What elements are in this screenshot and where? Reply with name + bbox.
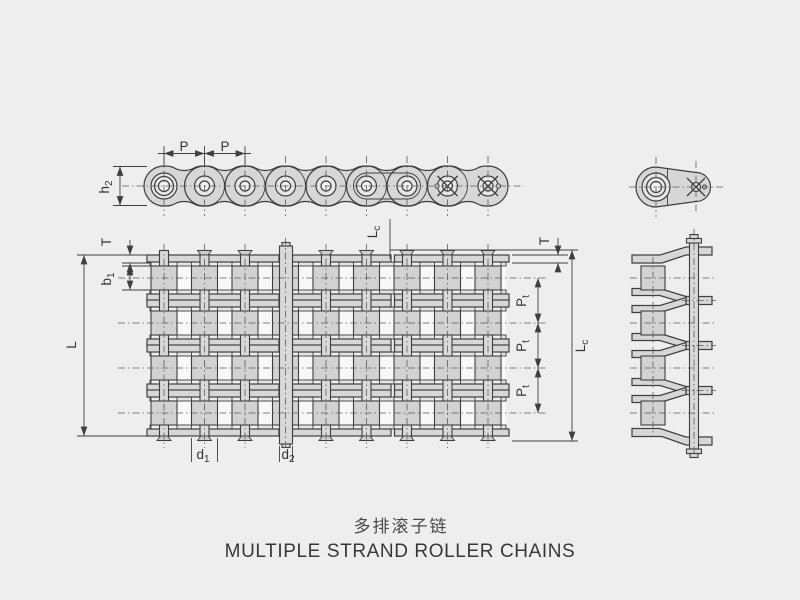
inner-plate — [218, 397, 233, 401]
pin-cap — [282, 243, 290, 247]
inner-plate — [258, 307, 273, 311]
inner-plate — [420, 380, 435, 384]
inner-plate — [461, 262, 476, 266]
inner-plate — [461, 380, 476, 384]
inner-plate — [501, 307, 506, 311]
inner-plate — [461, 397, 476, 401]
inner-plate — [339, 307, 354, 311]
inner-plate — [501, 352, 506, 356]
dim-label-pt-1: Pt — [514, 295, 532, 307]
inner-plate — [177, 307, 192, 311]
connecting-pin — [280, 246, 293, 444]
inner-plate — [299, 262, 314, 266]
cranked-plate — [632, 388, 686, 403]
inner-plate — [501, 425, 506, 429]
inner-plate — [501, 290, 506, 294]
inner-plate — [380, 425, 395, 429]
inner-plate — [299, 397, 314, 401]
inner-plate — [339, 290, 354, 294]
inner-plate — [299, 425, 314, 429]
inner-plate — [339, 397, 354, 401]
caption: 多排滚子链 MULTIPLE STRAND ROLLER CHAINS — [225, 517, 576, 562]
inner-plate — [150, 290, 151, 294]
inner-plate — [420, 307, 435, 311]
dim-label-d1: d1 — [196, 447, 210, 465]
profile-view-multistrand — [630, 229, 716, 459]
dim-label-h2: h2 — [97, 180, 115, 194]
inner-plate — [501, 380, 506, 384]
inner-plate — [258, 262, 273, 266]
inner-plate — [150, 262, 151, 266]
dim-label-l: L — [64, 341, 79, 349]
inner-plate — [461, 307, 476, 311]
outer-plate — [293, 429, 392, 436]
inner-plate — [177, 425, 192, 429]
inner-plate — [299, 352, 314, 356]
inner-plate — [218, 352, 233, 356]
inner-plate — [420, 352, 435, 356]
inner-plate — [461, 335, 476, 339]
inner-plate — [218, 290, 233, 294]
bottom-plate — [632, 429, 712, 446]
inner-plate — [150, 307, 151, 311]
inner-plate — [218, 262, 233, 266]
inner-plate — [420, 425, 435, 429]
inner-plate — [501, 262, 506, 266]
inner-plate — [420, 290, 435, 294]
cranked-plate — [632, 298, 686, 313]
inner-plate — [461, 352, 476, 356]
inner-plate — [420, 335, 435, 339]
inner-plate — [150, 397, 151, 401]
inner-plate — [380, 397, 395, 401]
inner-plate — [380, 380, 395, 384]
inner-plate — [218, 307, 233, 311]
inner-plate — [380, 335, 395, 339]
dim-label-t-left: T — [99, 238, 114, 246]
inner-plate — [299, 380, 314, 384]
inner-plate — [501, 397, 506, 401]
dim-label-pitch-2: P — [220, 139, 229, 154]
inner-plate — [258, 335, 273, 339]
outer-plate — [293, 390, 392, 397]
inner-plate — [258, 397, 273, 401]
inner-plate — [150, 352, 151, 356]
inner-plate — [258, 425, 273, 429]
title-english: MULTIPLE STRAND ROLLER CHAINS — [225, 541, 576, 562]
inner-plate — [420, 397, 435, 401]
outer-plate — [293, 255, 392, 262]
outer-plate — [293, 300, 392, 307]
inner-plate — [380, 307, 395, 311]
top-plate — [632, 247, 712, 263]
inner-plate — [420, 262, 435, 266]
inner-plate — [258, 352, 273, 356]
dim-label-lc-right: Lc — [573, 340, 591, 353]
inner-plate — [501, 335, 506, 339]
inner-plate — [177, 290, 192, 294]
dim-label-t-right: T — [537, 237, 552, 245]
inner-plate — [461, 290, 476, 294]
inner-plate — [339, 262, 354, 266]
inner-plate — [150, 335, 151, 339]
inner-plate — [299, 290, 314, 294]
inner-plate — [150, 380, 151, 384]
inner-plate — [380, 290, 395, 294]
cranked-plate — [632, 343, 686, 358]
inner-plate — [177, 262, 192, 266]
side-view-chain — [122, 156, 524, 216]
inner-plate — [299, 307, 314, 311]
inner-plate — [150, 425, 151, 429]
inner-plate — [177, 380, 192, 384]
title-chinese: 多排滚子链 — [354, 517, 449, 537]
drawing-canvas: P P h2 Lc T b1 L T Pt Pt Pt Lc d1 d2 多排滚… — [0, 0, 800, 600]
inner-plate — [258, 290, 273, 294]
end-view-link — [629, 157, 723, 217]
dim-label-pt-2: Pt — [514, 340, 532, 352]
inner-plate — [380, 352, 395, 356]
inner-plate — [218, 335, 233, 339]
technical-drawing: P P h2 Lc T b1 L T Pt Pt Pt Lc d1 d2 多排滚… — [0, 0, 800, 600]
inner-plate — [339, 352, 354, 356]
inner-plate — [339, 425, 354, 429]
inner-plate — [177, 397, 192, 401]
inner-plate — [218, 425, 233, 429]
inner-plate — [177, 352, 192, 356]
inner-plate — [258, 380, 273, 384]
inner-plate — [177, 335, 192, 339]
inner-plate — [299, 335, 314, 339]
dim-label-pt-3: Pt — [514, 385, 532, 397]
dim-label-pitch-1: P — [179, 139, 188, 154]
inner-plate — [461, 425, 476, 429]
inner-plate — [218, 380, 233, 384]
inner-plate — [380, 262, 395, 266]
outer-plate — [293, 345, 392, 352]
inner-plate — [339, 335, 354, 339]
plan-view-multistrand — [118, 238, 548, 452]
dim-label-b1: b1 — [99, 272, 117, 286]
dim-label-lc-top: Lc — [365, 226, 383, 239]
inner-plate — [339, 380, 354, 384]
